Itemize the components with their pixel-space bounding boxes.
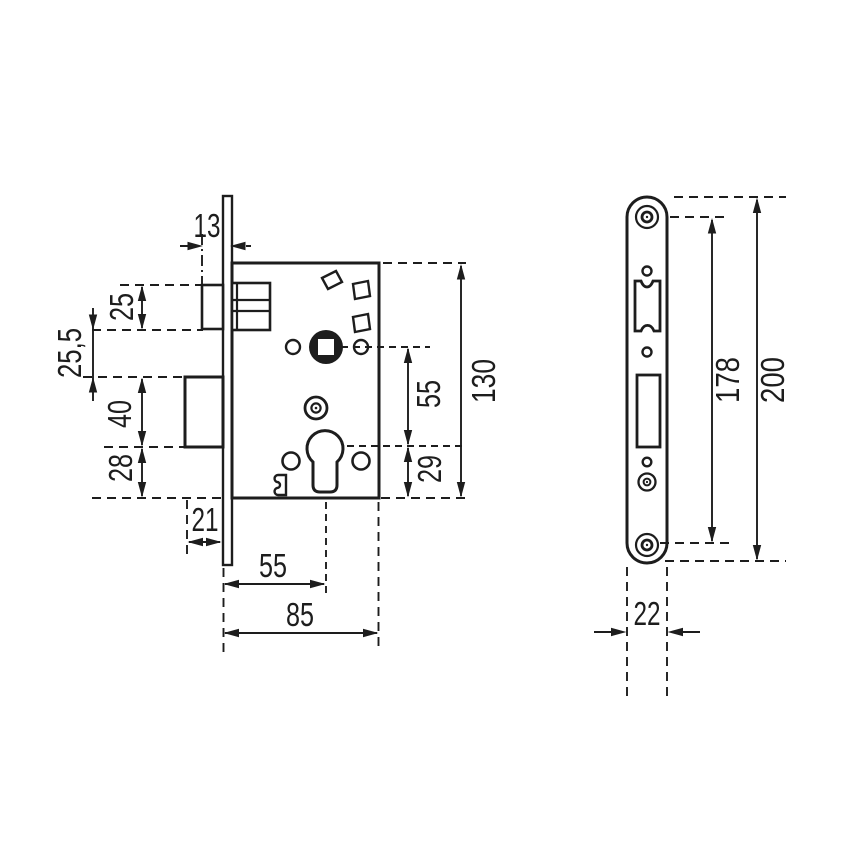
- latch-bolt-head: [202, 285, 223, 329]
- label-latch-to-bolt: 25,5: [51, 328, 88, 378]
- label-backset: 55: [259, 547, 287, 584]
- top-screw-dot: [646, 216, 648, 218]
- follower-square-hole: [317, 338, 335, 356]
- label-bolt-to-edge: 28: [102, 454, 139, 482]
- lock-drawing: 13 25 25,5 40 28 21 55 85 55 29 130 178 …: [0, 0, 850, 850]
- front-view: [627, 197, 667, 563]
- label-screw-spacing: 178: [709, 357, 746, 403]
- label-faceplate-width: 22: [634, 595, 661, 632]
- label-handle-to-cylinder: 55: [410, 380, 447, 408]
- deadbolt: [185, 377, 223, 447]
- handle-fixing-hole-left: [286, 340, 300, 354]
- center-screw: [305, 397, 327, 419]
- spring-tab-3: [353, 314, 370, 332]
- spring-tab-2: [353, 281, 370, 299]
- label-bolt-throw: 21: [192, 501, 219, 538]
- cylinder-fixing-hole-left: [283, 453, 300, 470]
- label-latch-height: 25: [103, 293, 140, 321]
- label-bolt-height: 40: [101, 400, 138, 428]
- technical-drawing-page: 13 25 25,5 40 28 21 55 85 55 29 130 178 …: [0, 0, 850, 850]
- cylinder-fixing-hole-right: [353, 453, 370, 470]
- label-case-height: 130: [465, 359, 502, 403]
- latch-mechanism: [232, 283, 270, 330]
- center-screw-dot: [315, 407, 318, 410]
- label-case-depth: 85: [286, 596, 314, 633]
- label-faceplate-offset: 13: [194, 207, 221, 244]
- label-cylinder-to-edge: 29: [411, 455, 448, 483]
- label-faceplate-length: 200: [754, 357, 791, 403]
- mid-screw-dot: [646, 481, 648, 483]
- handle-follower: [309, 330, 343, 364]
- cylinder-hole: [307, 431, 343, 492]
- bottom-screw-dot: [646, 544, 648, 546]
